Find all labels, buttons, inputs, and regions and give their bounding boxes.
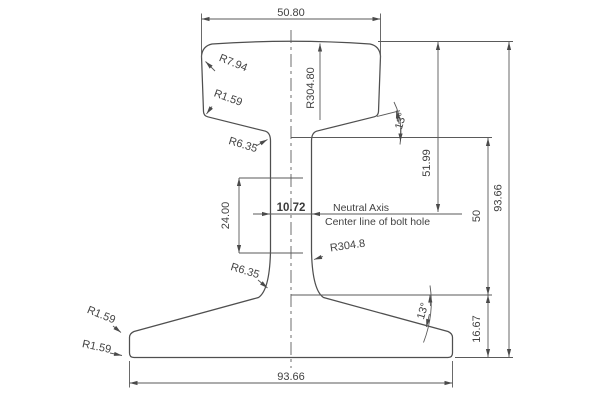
dim-web-gauge-label: 24.00 <box>220 202 232 230</box>
dim-crown-radius-label: R304.80 <box>305 67 317 109</box>
dim-overall-height: 93.66 <box>493 42 510 357</box>
dim-head-width-label: 50.80 <box>277 7 305 19</box>
dim-base-width: 93.66 <box>130 361 453 388</box>
dim-base-width-label: 93.66 <box>277 371 305 383</box>
dim-base-tip-top-radius-label: R1.59 <box>85 304 117 326</box>
dim-web-base-fillet: R6.35 <box>229 261 267 288</box>
dim-head-web-fillet-label: R6.35 <box>227 135 259 155</box>
dim-neutral-axis-depth-label: 51.99 <box>421 149 433 177</box>
dim-head-lower-corner-radius: R1.59 <box>207 88 244 114</box>
dim-base-edge-height: 16.67 <box>471 295 488 357</box>
extension-lines-right <box>291 42 513 358</box>
dim-lower-section: 50 <box>471 138 488 295</box>
dim-base-top-angle: 13° <box>415 286 431 343</box>
dim-overall-height-label: 93.66 <box>493 184 505 212</box>
rail-section-drawing: 50.80 R304.80 R7.94 R1.59 R6.35 24.00 10… <box>0 0 600 400</box>
dim-lower-section-label: 50 <box>471 210 483 222</box>
drawing-svg: 50.80 R304.80 R7.94 R1.59 R6.35 24.00 10… <box>0 0 600 400</box>
dim-web-thickness-label: 10.72 <box>277 202 306 214</box>
dim-web-face-radius-label: R304.8 <box>329 238 366 255</box>
dim-head-web-fillet: R6.35 <box>227 135 267 155</box>
dim-neutral-axis-depth: 51.99 <box>421 42 438 212</box>
dim-head-underside-angle-label: 13° <box>393 111 409 130</box>
neutral-axis-label: Neutral Axis <box>333 202 389 214</box>
bolt-hole-center-label: Center line of bolt hole <box>325 216 430 228</box>
dim-head-underside-angle: 13° <box>377 102 409 145</box>
dim-head-lower-corner-radius-label: R1.59 <box>212 88 244 109</box>
dim-base-edge-height-label: 16.67 <box>471 315 483 343</box>
dim-base-tip-top-radius: R1.59 <box>85 304 121 332</box>
dim-base-tip-bottom-radius-label: R1.59 <box>81 338 112 356</box>
dim-web-face-radius: R304.8 <box>314 238 366 260</box>
dim-base-tip-bottom-radius: R1.59 <box>81 338 122 356</box>
dim-web-thickness: 10.72 <box>254 202 328 214</box>
dim-web-base-fillet-label: R6.35 <box>229 261 261 281</box>
dim-head-corner-radius-label: R7.94 <box>217 52 249 74</box>
dim-crown-radius: R304.80 <box>305 44 320 121</box>
dim-head-corner-radius: R7.94 <box>206 52 249 74</box>
